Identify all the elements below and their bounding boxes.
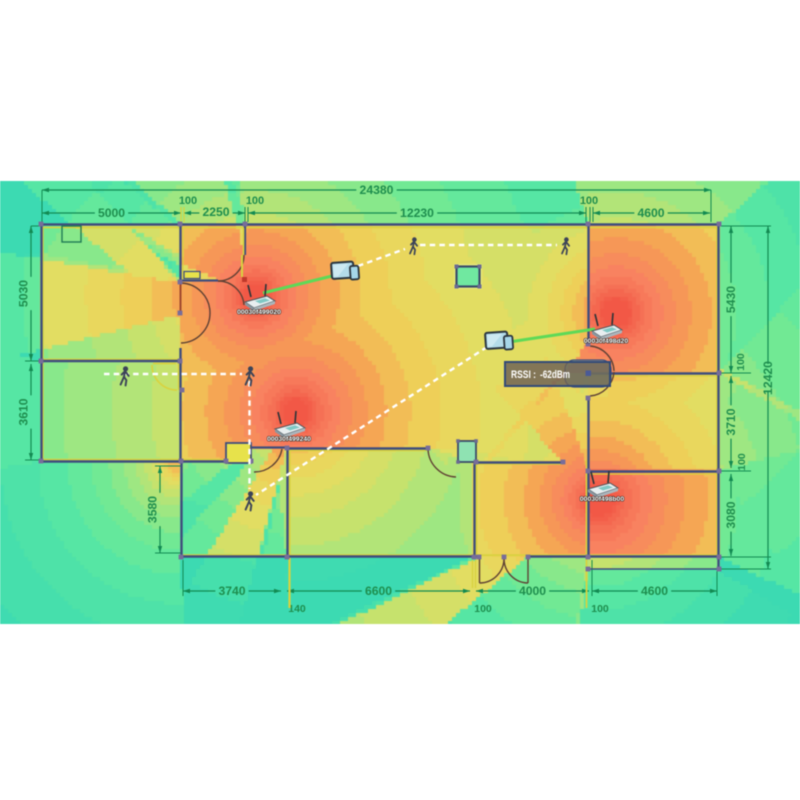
svg-text:4600: 4600 [641, 584, 668, 598]
svg-text:RSSI :: RSSI : [511, 369, 536, 381]
svg-text:00030f499240: 00030f499240 [267, 436, 311, 443]
svg-text:5000: 5000 [98, 206, 125, 220]
svg-text:3740: 3740 [218, 584, 245, 598]
svg-text:4000: 4000 [519, 584, 546, 598]
svg-text:00030f498d20: 00030f498d20 [584, 338, 628, 345]
svg-text:24380: 24380 [360, 183, 394, 197]
svg-text:00030f498b00: 00030f498b00 [580, 496, 624, 503]
svg-text:3710: 3710 [724, 408, 738, 435]
svg-text:100: 100 [735, 353, 747, 371]
svg-text:100: 100 [591, 603, 609, 615]
svg-text:100: 100 [580, 195, 598, 207]
svg-text:5030: 5030 [17, 280, 31, 307]
svg-text:3580: 3580 [146, 496, 160, 523]
svg-text:-62dBm: -62dBm [540, 369, 570, 381]
svg-text:00030f499020: 00030f499020 [237, 309, 281, 316]
svg-text:100: 100 [474, 603, 492, 615]
svg-text:6600: 6600 [365, 584, 392, 598]
svg-text:5430: 5430 [724, 286, 738, 313]
svg-text:4600: 4600 [637, 206, 664, 220]
svg-text:100: 100 [736, 453, 748, 471]
svg-text:3080: 3080 [724, 501, 738, 528]
svg-text:140: 140 [288, 603, 306, 615]
svg-text:2250: 2250 [202, 205, 229, 219]
svg-text:12230: 12230 [400, 206, 434, 220]
svg-text:100: 100 [246, 195, 264, 207]
svg-text:12420: 12420 [761, 361, 775, 395]
svg-text:3610: 3610 [17, 398, 31, 425]
svg-text:100: 100 [179, 195, 197, 207]
